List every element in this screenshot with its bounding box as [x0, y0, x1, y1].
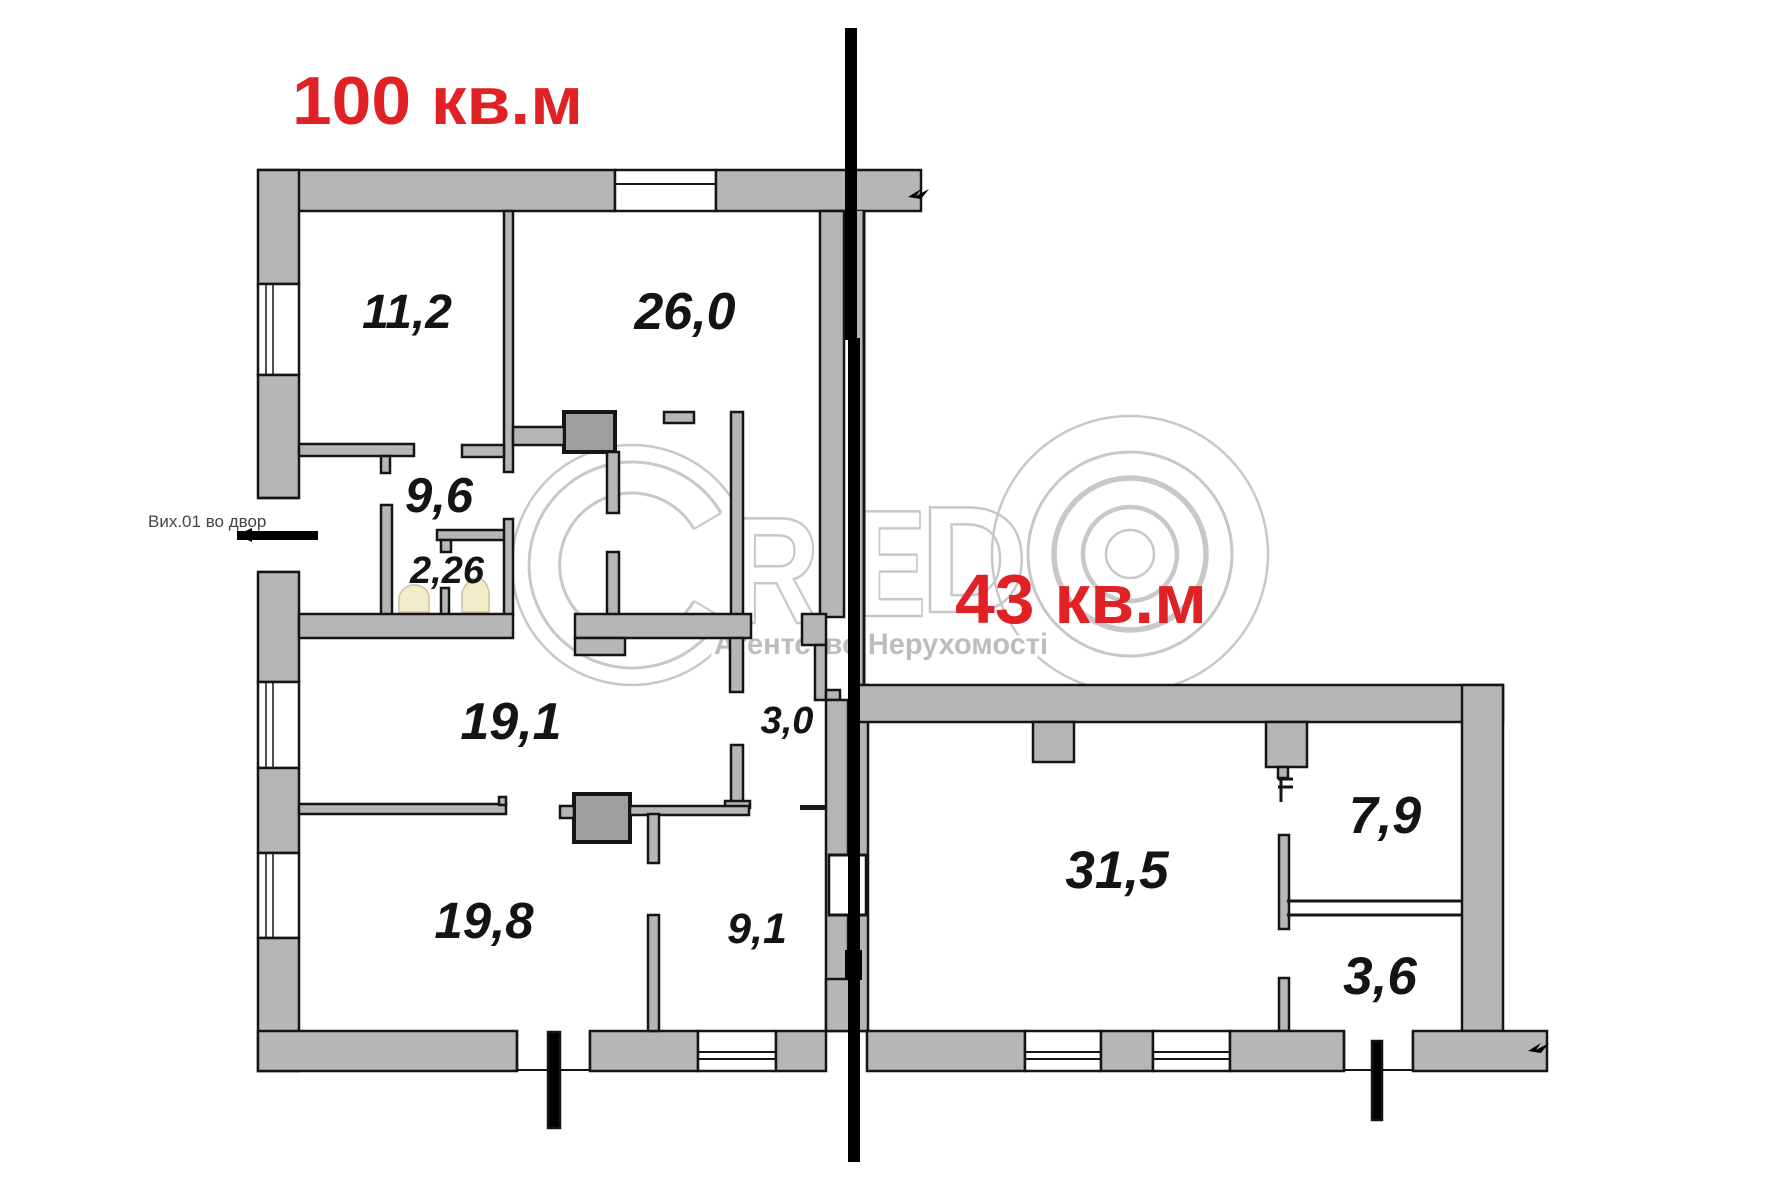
svg-text:9,1: 9,1: [727, 905, 787, 953]
svg-text:19,1: 19,1: [460, 693, 561, 751]
svg-text:Вих.01 во двор: Вих.01 во двор: [148, 512, 266, 531]
svg-text:E: E: [858, 479, 926, 649]
svg-text:3,0: 3,0: [761, 700, 814, 742]
svg-text:2,26: 2,26: [409, 550, 485, 592]
svg-text:19,8: 19,8: [434, 892, 534, 949]
svg-text:43 кв.м: 43 кв.м: [955, 560, 1207, 638]
svg-text:26,0: 26,0: [633, 283, 735, 341]
svg-text:100 кв.м: 100 кв.м: [292, 63, 583, 139]
svg-text:9,6: 9,6: [405, 469, 474, 523]
svg-text:31,5: 31,5: [1065, 841, 1170, 900]
svg-text:7,9: 7,9: [1349, 787, 1421, 845]
svg-text:11,2: 11,2: [362, 286, 452, 339]
svg-text:3,6: 3,6: [1343, 947, 1417, 1006]
